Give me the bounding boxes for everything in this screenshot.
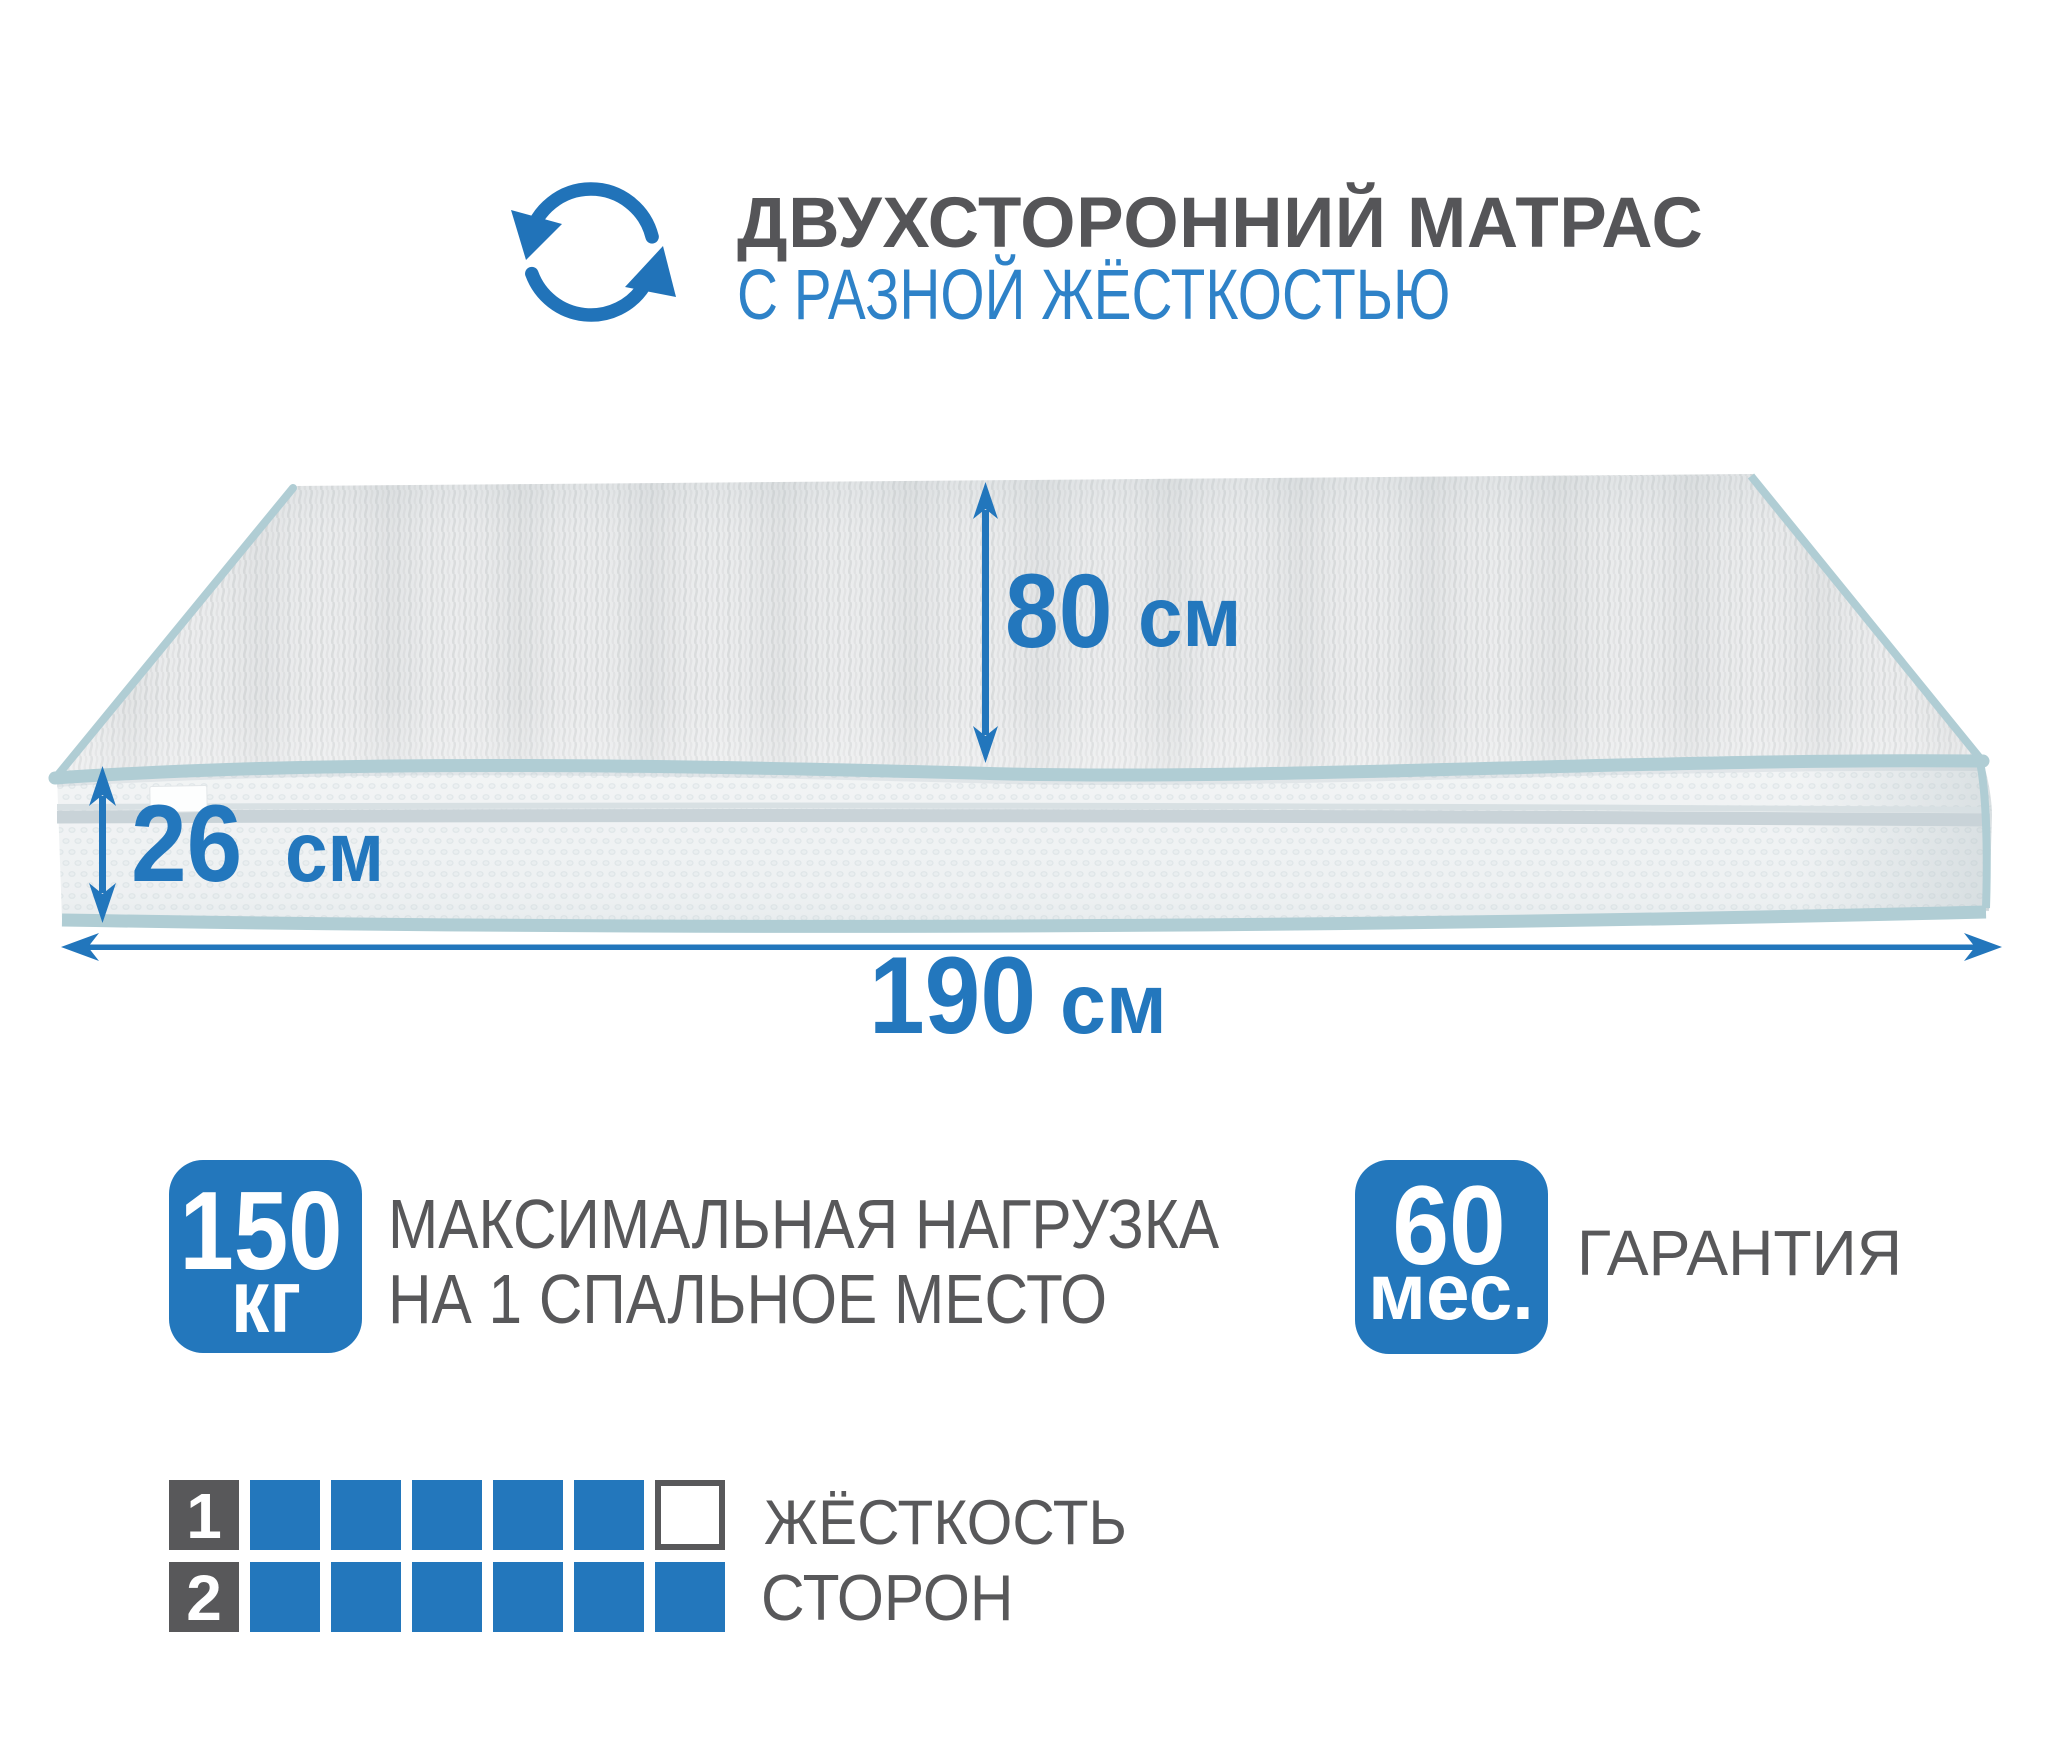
svg-text:80: 80 [1005, 553, 1112, 670]
svg-text:ДВУХСТОРОННИЙ МАТРАС: ДВУХСТОРОННИЙ МАТРАС [737, 183, 1703, 263]
svg-text:С РАЗНОЙ ЖЁСТКОСТЬЮ: С РАЗНОЙ ЖЁСТКОСТЬЮ [737, 254, 1450, 335]
svg-text:190: 190 [869, 935, 1036, 1057]
svg-text:кг: кг [231, 1250, 301, 1351]
svg-text:ЖЁСТКОСТЬ: ЖЁСТКОСТЬ [764, 1487, 1127, 1557]
svg-text:мес.: мес. [1368, 1246, 1534, 1336]
svg-text:МАКСИМАЛЬНАЯ НАГРУЗКА: МАКСИМАЛЬНАЯ НАГРУЗКА [388, 1185, 1220, 1263]
svg-text:СТОРОН: СТОРОН [761, 1562, 1013, 1634]
svg-text:НА 1 СПАЛЬНОЕ МЕСТО: НА 1 СПАЛЬНОЕ МЕСТО [388, 1260, 1107, 1338]
svg-text:см: см [285, 805, 384, 900]
svg-text:1: 1 [186, 1480, 222, 1552]
svg-text:ГАРАНТИЯ: ГАРАНТИЯ [1577, 1218, 1902, 1289]
svg-text:см: см [1060, 956, 1167, 1051]
svg-text:см: см [1138, 570, 1242, 665]
svg-text:2: 2 [186, 1562, 222, 1634]
svg-text:26: 26 [131, 783, 242, 905]
